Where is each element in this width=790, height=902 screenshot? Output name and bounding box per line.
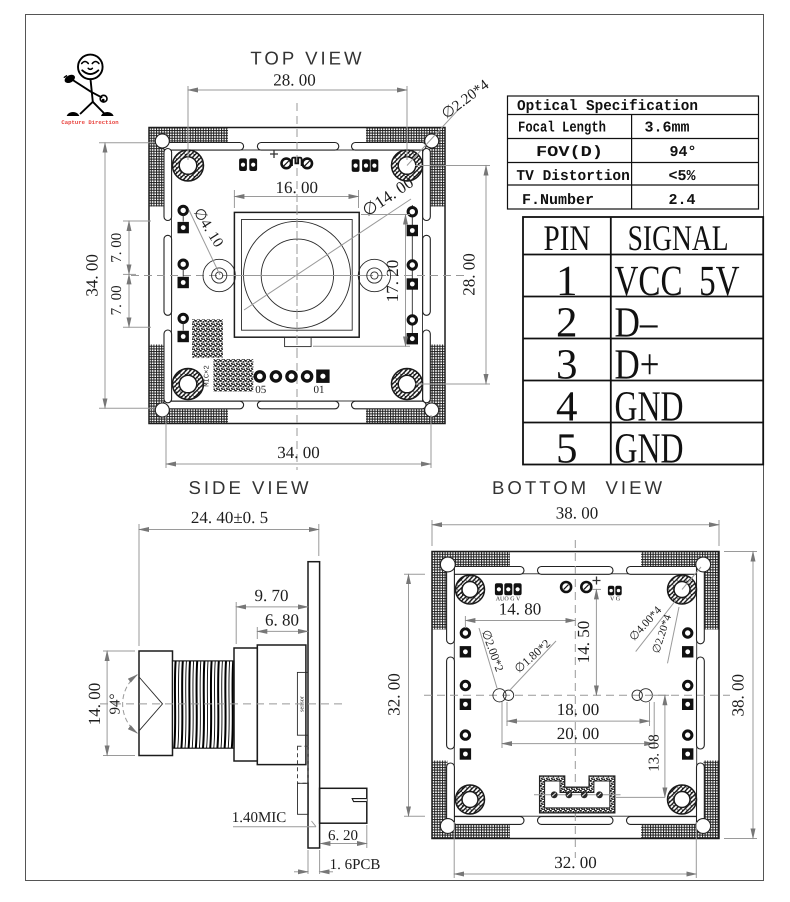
svg-text:14. 80: 14. 80 (499, 600, 542, 619)
svg-text:BOTTOM VIEW: BOTTOM VIEW (492, 477, 665, 498)
svg-text:TOP VIEW: TOP VIEW (250, 48, 364, 69)
svg-text:Capture Direction: Capture Direction (61, 119, 118, 125)
svg-text:34. 00: 34. 00 (83, 254, 102, 297)
svg-text:32. 00: 32. 00 (385, 673, 404, 716)
svg-text:<5%: <5% (668, 168, 696, 185)
svg-text:28. 00: 28. 00 (273, 71, 316, 90)
svg-text:4: 4 (556, 384, 578, 431)
svg-text:38. 00: 38. 00 (729, 674, 748, 717)
svg-text:D+: D+ (615, 342, 660, 389)
svg-text:PIN: PIN (544, 218, 591, 258)
svg-text:GND: GND (615, 384, 684, 431)
svg-text:V G: V G (610, 595, 620, 602)
svg-text:1: 1 (556, 258, 578, 305)
svg-text:01: 01 (314, 384, 325, 396)
svg-text:6. 80: 6. 80 (265, 611, 299, 630)
svg-text:94°: 94° (108, 694, 124, 715)
svg-text:2.4: 2.4 (668, 192, 695, 209)
svg-text:7. 00: 7. 00 (109, 285, 125, 315)
svg-text:14. 50: 14. 50 (574, 621, 593, 664)
svg-text:Focal Length: Focal Length (518, 120, 606, 137)
svg-text:13. 08: 13. 08 (647, 734, 663, 772)
svg-text:D–: D– (615, 300, 658, 347)
svg-text:VCC 5V: VCC 5V (615, 258, 740, 305)
svg-text:94°: 94° (669, 144, 696, 161)
svg-text:28. 00: 28. 00 (460, 253, 479, 296)
svg-text:6. 20: 6. 20 (328, 828, 358, 844)
svg-text:TV Distortion: TV Distortion (516, 168, 630, 185)
svg-text:MIC×2: MIC×2 (202, 365, 210, 387)
svg-text:5: 5 (556, 426, 578, 473)
svg-text:18. 00: 18. 00 (557, 700, 600, 719)
svg-text:24. 40±0. 5: 24. 40±0. 5 (191, 508, 268, 527)
svg-text:F.Number: F.Number (522, 192, 594, 209)
svg-text:3: 3 (556, 342, 578, 389)
svg-text:GND: GND (615, 426, 684, 473)
svg-text:Optical Specification: Optical Specification (517, 98, 698, 115)
svg-text:20. 00: 20. 00 (557, 724, 600, 743)
svg-text:2: 2 (556, 300, 578, 347)
svg-text:3.6mm: 3.6mm (644, 120, 689, 137)
svg-text:7. 00: 7. 00 (109, 233, 125, 263)
svg-text:38. 00: 38. 00 (556, 504, 599, 523)
svg-text:17. 20: 17. 20 (383, 260, 402, 303)
svg-text:34. 00: 34. 00 (277, 443, 320, 462)
svg-text:32. 00: 32. 00 (554, 853, 597, 872)
svg-text:05: 05 (255, 384, 267, 396)
svg-text:SIGNAL: SIGNAL (628, 218, 729, 258)
svg-text:SIDE VIEW: SIDE VIEW (188, 477, 311, 498)
svg-text:1.40MIC: 1.40MIC (232, 810, 287, 826)
svg-text:14. 00: 14. 00 (85, 683, 104, 726)
svg-text:16. 00: 16. 00 (276, 178, 319, 197)
svg-text:FOV(D): FOV(D) (536, 144, 603, 161)
svg-text:9. 70: 9. 70 (255, 586, 289, 605)
svg-text:1. 6PCB: 1. 6PCB (330, 857, 381, 873)
